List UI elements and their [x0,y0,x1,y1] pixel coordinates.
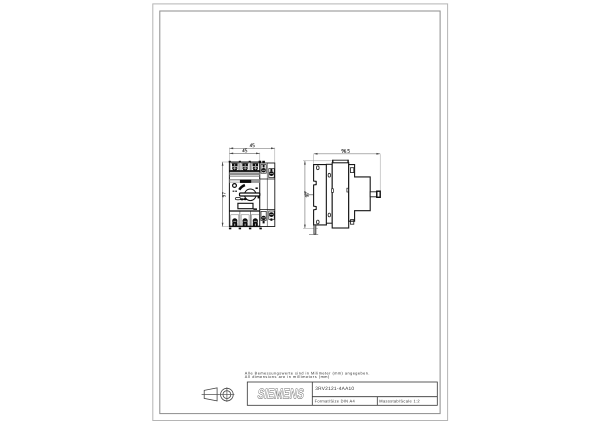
svg-text:Massstab/Scale 1:2: Massstab/Scale 1:2 [379,398,420,403]
svg-text:Format/Size DIN A4: Format/Size DIN A4 [315,398,356,403]
svg-text:SIEMENS: SIEMENS [256,386,305,402]
svg-text:All dimensions are in millimet: All dimensions are in millimeters (mm) [245,375,330,379]
svg-text:3RV2121-4AA10: 3RV2121-4AA10 [315,386,354,392]
